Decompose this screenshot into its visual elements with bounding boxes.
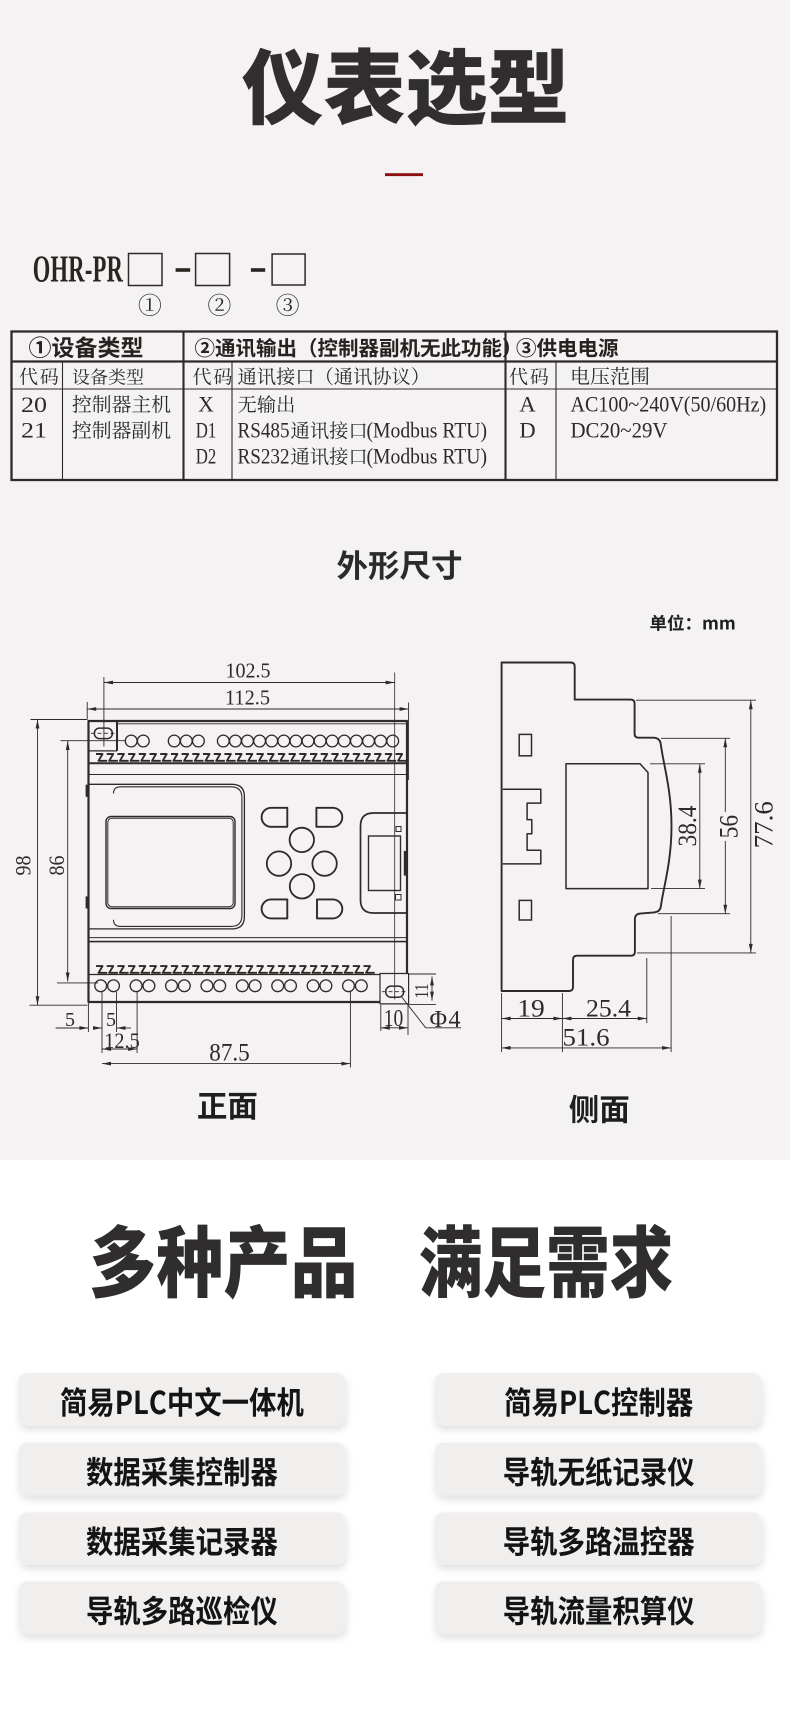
svg-text:19: 19 [517, 996, 545, 1023]
svg-text:D: D [519, 418, 535, 443]
svg-text:AC100~240V(50/60Hz): AC100~240V(50/60Hz) [571, 392, 767, 417]
svg-text:11: 11 [411, 984, 433, 999]
svg-text:56: 56 [715, 815, 744, 839]
svg-text:D1: D1 [196, 418, 217, 443]
svg-text:102.5: 102.5 [226, 659, 271, 683]
svg-text:Φ4: Φ4 [430, 1007, 463, 1033]
svg-text:A: A [519, 392, 536, 417]
svg-text:(Modbus RTU): (Modbus RTU) [367, 418, 488, 443]
svg-text:25.4: 25.4 [586, 996, 632, 1023]
svg-text:12.5: 12.5 [104, 1028, 140, 1053]
svg-text:112.5: 112.5 [225, 686, 270, 710]
svg-text:RS485: RS485 [238, 418, 290, 443]
svg-text:98: 98 [10, 856, 35, 876]
svg-text:RS232: RS232 [238, 444, 290, 469]
svg-text:87.5: 87.5 [209, 1040, 250, 1067]
svg-text:X: X [198, 392, 214, 417]
svg-text:DC20~29V: DC20~29V [571, 418, 668, 443]
svg-text:38.4: 38.4 [673, 806, 702, 847]
svg-text:OHR-PR: OHR-PR [33, 248, 124, 291]
svg-text:(Modbus RTU): (Modbus RTU) [367, 444, 488, 469]
svg-text:86: 86 [44, 856, 69, 876]
svg-text:20: 20 [21, 392, 47, 417]
svg-text:21: 21 [21, 418, 47, 443]
svg-text:10: 10 [384, 1006, 404, 1032]
svg-text:77.6: 77.6 [749, 801, 778, 848]
svg-text:51.6: 51.6 [563, 1025, 610, 1052]
svg-text:5: 5 [65, 1009, 75, 1031]
svg-text:D2: D2 [196, 444, 217, 469]
